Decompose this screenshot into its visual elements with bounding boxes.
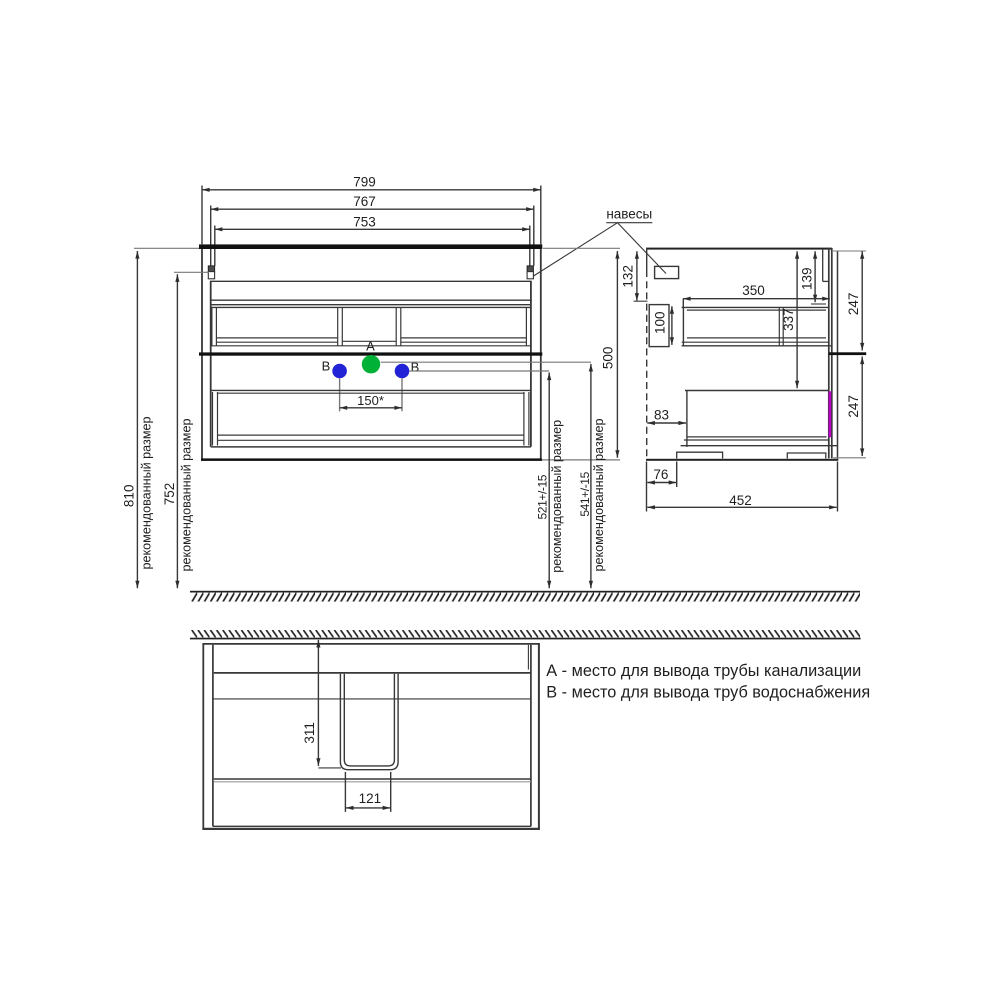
svg-text:521+/-15: 521+/-15 [535, 474, 549, 519]
svg-text:121: 121 [359, 791, 382, 806]
svg-text:навесы: навесы [606, 207, 652, 222]
svg-text:рекомендованный размер: рекомендованный размер [179, 419, 193, 572]
svg-text:541+/-15: 541+/-15 [578, 471, 592, 516]
svg-text:752: 752 [162, 483, 177, 506]
svg-text:810: 810 [122, 485, 137, 508]
svg-text:452: 452 [729, 493, 752, 508]
svg-text:767: 767 [353, 194, 376, 209]
svg-text:76: 76 [653, 467, 668, 482]
svg-text:500: 500 [600, 347, 615, 370]
svg-text:рекомендованный размер: рекомендованный размер [550, 420, 564, 573]
svg-text:A: A [366, 338, 375, 353]
svg-text:799: 799 [353, 175, 376, 190]
svg-text:753: 753 [353, 214, 376, 229]
svg-text:рекомендованный размер: рекомендованный размер [140, 417, 154, 570]
svg-text:247: 247 [846, 395, 861, 418]
svg-text:рекомендованный размер: рекомендованный размер [592, 419, 606, 572]
svg-text:150*: 150* [357, 393, 384, 408]
svg-text:83: 83 [654, 407, 669, 422]
svg-text:139: 139 [800, 267, 815, 290]
svg-text:350: 350 [742, 283, 765, 298]
svg-text:247: 247 [846, 293, 861, 316]
svg-text:311: 311 [302, 722, 317, 744]
svg-text:А - место для вывода трубы кан: А - место для вывода трубы канализации [546, 662, 861, 680]
svg-text:100: 100 [653, 311, 668, 334]
svg-text:В - место для вывода труб водо: В - место для вывода труб водоснабжения [546, 683, 870, 701]
svg-text:337: 337 [781, 308, 796, 331]
svg-text:132: 132 [621, 265, 636, 288]
svg-text:B: B [322, 359, 331, 374]
